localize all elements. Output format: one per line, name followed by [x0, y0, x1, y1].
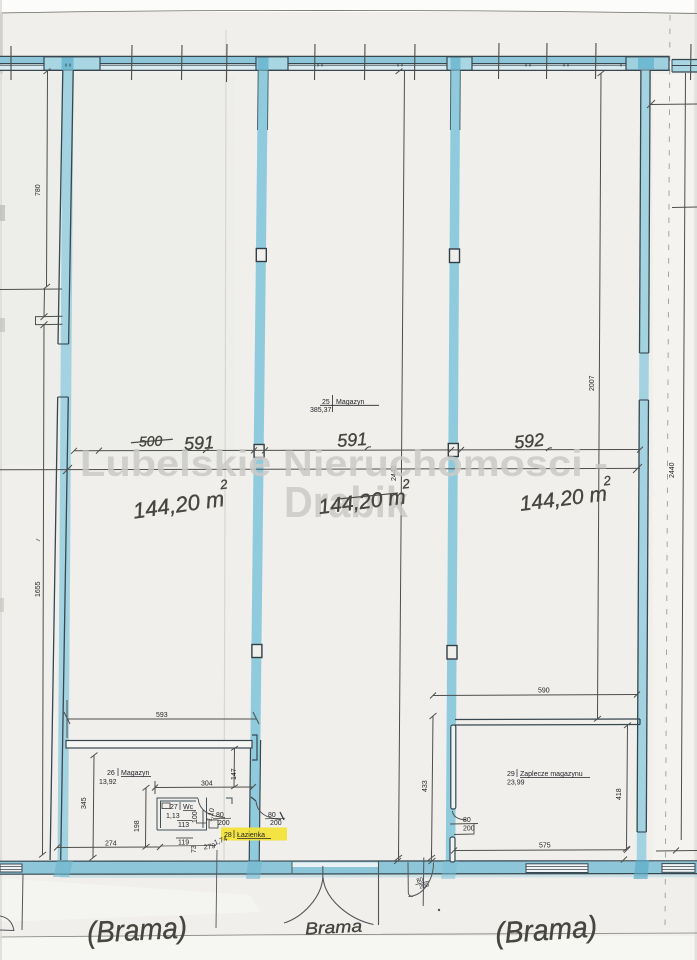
- svg-text:Magazyn: Magazyn: [121, 770, 150, 777]
- svg-text:200: 200: [463, 826, 475, 833]
- svg-text:2440: 2440: [669, 462, 676, 478]
- svg-text:(Brama): (Brama): [86, 912, 188, 950]
- svg-text:80: 80: [216, 812, 224, 819]
- svg-text:1655: 1655: [35, 581, 42, 597]
- svg-text:590: 590: [538, 688, 550, 695]
- svg-text:200: 200: [270, 820, 282, 827]
- svg-text:27: 27: [170, 804, 178, 811]
- svg-text:Wc: Wc: [183, 804, 194, 811]
- svg-text:Zaplecze magazynu: Zaplecze magazynu: [520, 771, 583, 778]
- svg-text:592: 592: [513, 430, 545, 453]
- svg-text:13,92: 13,92: [99, 779, 117, 786]
- svg-text:418: 418: [616, 788, 623, 800]
- svg-text:575: 575: [539, 843, 551, 850]
- svg-text:2007: 2007: [589, 375, 596, 391]
- svg-text:385,37: 385,37: [310, 407, 332, 414]
- svg-text:73: 73: [191, 845, 198, 853]
- svg-text:198: 198: [134, 820, 141, 832]
- svg-text:Brama: Brama: [305, 917, 363, 939]
- svg-text:591: 591: [184, 432, 215, 454]
- svg-text:304: 304: [201, 781, 213, 788]
- svg-text:593: 593: [156, 712, 168, 719]
- svg-text:23,99: 23,99: [507, 780, 525, 787]
- svg-text:29: 29: [507, 771, 515, 778]
- svg-text:113: 113: [178, 822, 189, 829]
- svg-text:200: 200: [218, 820, 230, 827]
- svg-text:26: 26: [107, 770, 115, 777]
- svg-text:1,13: 1,13: [166, 813, 180, 820]
- svg-text:Łazienka: Łazienka: [237, 832, 265, 839]
- svg-text:100: 100: [192, 811, 199, 823]
- svg-text:591: 591: [336, 429, 367, 451]
- svg-text:433: 433: [422, 780, 429, 792]
- svg-text:147: 147: [231, 768, 238, 780]
- svg-text:80: 80: [463, 817, 471, 824]
- svg-text:345: 345: [81, 797, 88, 809]
- svg-text:780: 780: [35, 184, 42, 196]
- svg-text:80: 80: [268, 812, 276, 819]
- svg-text:274: 274: [105, 841, 117, 848]
